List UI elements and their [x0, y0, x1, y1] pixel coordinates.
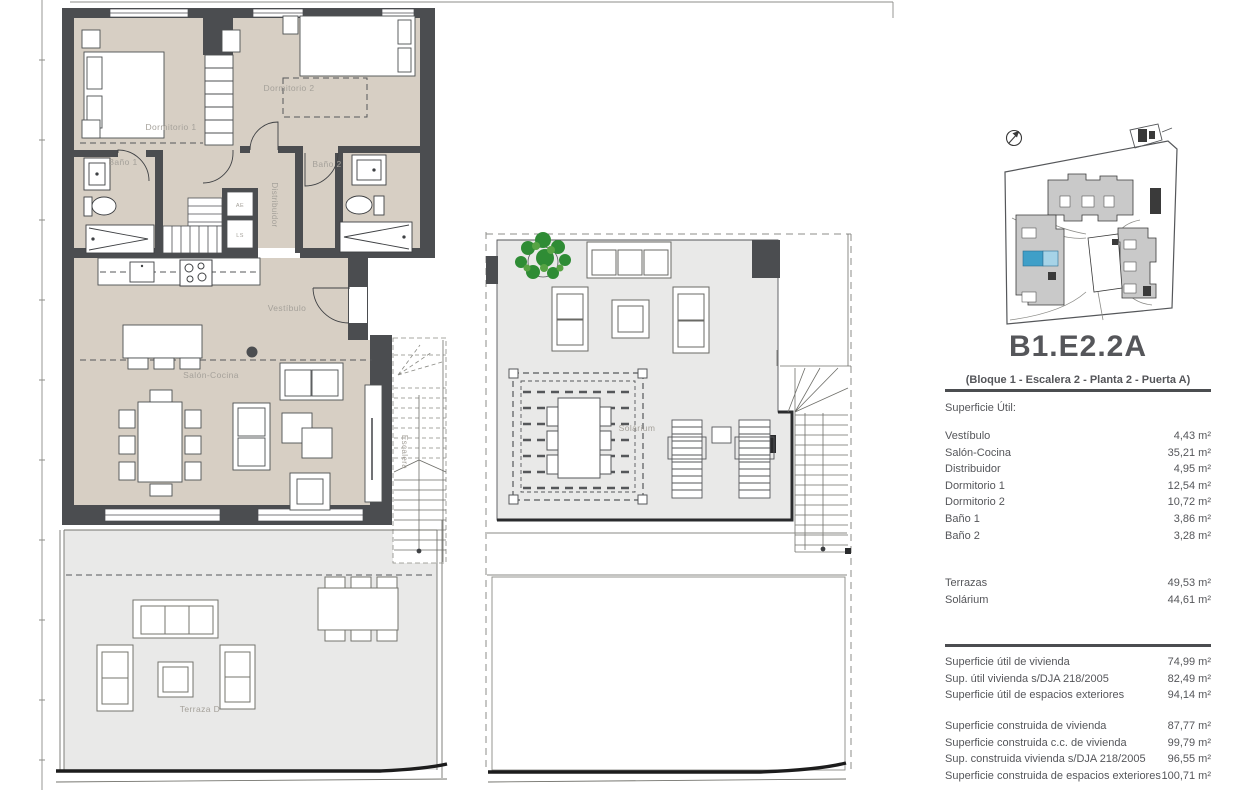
floorplan-sheet: Dormitorio 1 Dormitorio 2 Baño 1 Baño 2 … [0, 0, 1245, 790]
label-dormitorio-1: Dormitorio 1 [145, 122, 196, 132]
row-label: Terrazas [945, 575, 987, 592]
label-ls: LS [236, 233, 244, 239]
row-value: 44,61 m² [1168, 592, 1211, 609]
label-vestibulo: Vestíbulo [268, 303, 307, 313]
row-label: Sup. construida vivienda s/DJA 218/2005 [945, 751, 1146, 768]
solarium-dining-table [547, 398, 611, 478]
label-bano-1: Baño 1 [108, 157, 137, 167]
row-value: 94,14 m² [1168, 687, 1211, 704]
unit-info-panel: B1.E2.2A (Bloque 1 - Escalera 2 - Planta… [945, 0, 1211, 790]
row-value: 3,86 m² [1174, 511, 1211, 528]
row-label: Solárium [945, 592, 988, 609]
unit-code: B1.E2.2A [945, 330, 1211, 364]
table-row: Vestíbulo4,43 m² [945, 428, 1211, 445]
table-row: Superficie útil de vivienda74,99 m² [945, 654, 1211, 671]
row-value: 10,72 m² [1168, 494, 1211, 511]
superficie-util-heading: Superficie Útil: [945, 402, 1016, 414]
divider-rule-bottom [945, 644, 1211, 647]
table-row: Dormitorio 112,54 m² [945, 478, 1211, 495]
row-value: 87,77 m² [1168, 718, 1211, 735]
row-label: Superficie útil de espacios exteriores [945, 687, 1124, 704]
row-label: Vestíbulo [945, 428, 990, 445]
label-terraza: Terraza D [180, 704, 220, 714]
row-label: Superficie construida de espacios exteri… [945, 768, 1161, 785]
row-value: 74,99 m² [1168, 654, 1211, 671]
row-value: 100,71 m² [1161, 768, 1211, 785]
row-value: 4,95 m² [1174, 461, 1211, 478]
row-label: Dormitorio 2 [945, 494, 1005, 511]
label-ae: AE [236, 203, 244, 209]
label-solarium: Solárium [619, 423, 656, 433]
row-value: 3,28 m² [1174, 528, 1211, 545]
row-value: 49,53 m² [1168, 575, 1211, 592]
bed-dormitorio-2 [283, 16, 415, 76]
room-areas-table: Vestíbulo4,43 m² Salón-Cocina35,21 m² Di… [945, 428, 1211, 544]
plan-main-floor: Dormitorio 1 Dormitorio 2 Baño 1 Baño 2 … [56, 8, 447, 782]
row-label: Superficie construida c.c. de vivienda [945, 735, 1127, 752]
table-row: Salón-Cocina35,21 m² [945, 445, 1211, 462]
row-value: 35,21 m² [1168, 445, 1211, 462]
table-row: Superficie útil de espacios exteriores94… [945, 687, 1211, 704]
row-label: Superficie útil de vivienda [945, 654, 1070, 671]
table-row: Sup. útil vivienda s/DJA 218/200582,49 m… [945, 671, 1211, 688]
terrace-bottom-thin [56, 779, 447, 782]
table-row: Baño 13,86 m² [945, 511, 1211, 528]
totals-util-table: Superficie útil de vivienda74,99 m² Sup.… [945, 654, 1211, 704]
solarium-bottom-thin [488, 779, 846, 782]
row-label: Baño 1 [945, 511, 980, 528]
table-row: Sup. construida vivienda s/DJA 218/20059… [945, 751, 1211, 768]
label-escalera: Escalera [400, 435, 409, 469]
structural-column [247, 347, 258, 358]
unit-subtitle: (Bloque 1 - Escalera 2 - Planta 2 - Puer… [935, 374, 1221, 386]
row-value: 96,55 m² [1168, 751, 1211, 768]
table-row: Solárium44,61 m² [945, 592, 1211, 609]
row-value: 4,43 m² [1174, 428, 1211, 445]
totals-construida-table: Superficie construida de vivienda87,77 m… [945, 718, 1211, 784]
table-row: Distribuidor4,95 m² [945, 461, 1211, 478]
kitchen-counter [98, 258, 260, 286]
lower-floor-outline [487, 533, 847, 770]
table-row: Superficie construida de vivienda87,77 m… [945, 718, 1211, 735]
table-row: Baño 23,28 m² [945, 528, 1211, 545]
row-label: Baño 2 [945, 528, 980, 545]
table-row: Superficie construida de espacios exteri… [945, 768, 1211, 785]
label-distribuidor: Distribuidor [270, 182, 279, 227]
row-label: Sup. útil vivienda s/DJA 218/2005 [945, 671, 1109, 688]
label-bano-2: Baño 2 [312, 159, 341, 169]
exterior-areas-table: Terrazas49,53 m² Solárium44,61 m² [945, 575, 1211, 608]
row-label: Dormitorio 1 [945, 478, 1005, 495]
table-row: Dormitorio 210,72 m² [945, 494, 1211, 511]
row-label: Superficie construida de vivienda [945, 718, 1106, 735]
solarium-bottom-edge [488, 763, 846, 772]
table-row: Superficie construida c.c. de vivienda99… [945, 735, 1211, 752]
row-value: 12,54 m² [1168, 478, 1211, 495]
table-row: Terrazas49,53 m² [945, 575, 1211, 592]
divider-rule-top [945, 389, 1211, 392]
plan-solarium: Solárium [486, 232, 851, 782]
kitchen-island [123, 325, 202, 369]
row-label: Distribuidor [945, 461, 1001, 478]
row-value: 82,49 m² [1168, 671, 1211, 688]
label-salon-cocina: Salón-Cocina [183, 370, 239, 380]
row-value: 99,79 m² [1168, 735, 1211, 752]
label-dormitorio-2: Dormitorio 2 [263, 83, 314, 93]
row-label: Salón-Cocina [945, 445, 1011, 462]
